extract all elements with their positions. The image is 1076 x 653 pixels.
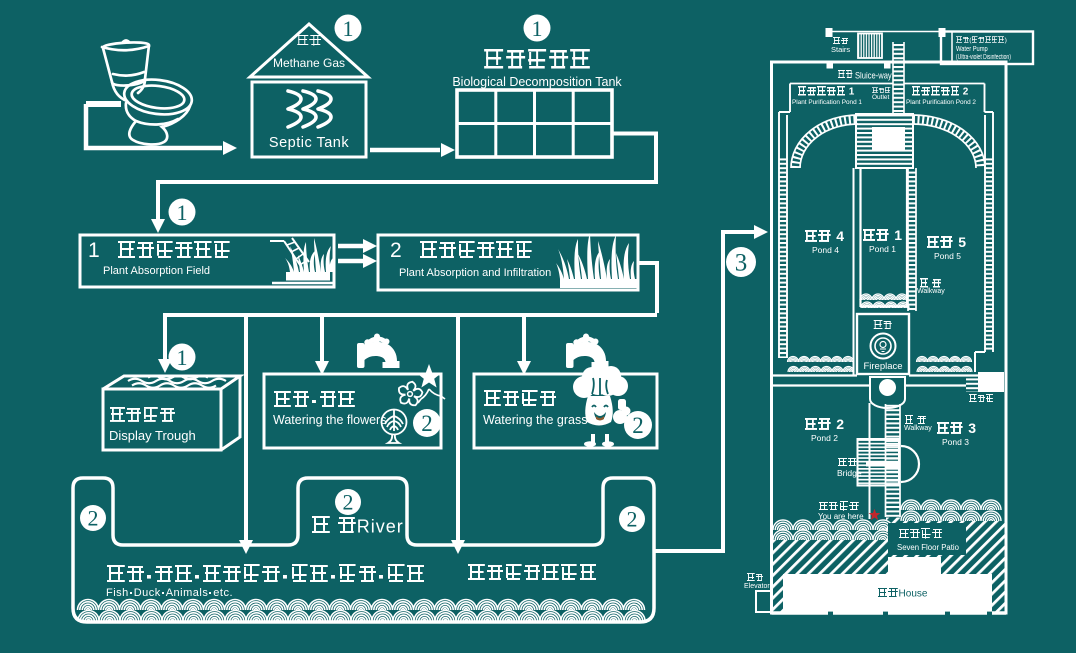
- svg-text:3: 3: [735, 250, 748, 277]
- svg-text:1: 1: [343, 16, 354, 41]
- svg-text:2: 2: [343, 490, 354, 515]
- svg-text:1: 1: [177, 345, 188, 370]
- svg-text:2: 2: [421, 411, 433, 436]
- svg-text:1: 1: [532, 16, 543, 41]
- svg-text:2: 2: [627, 507, 638, 532]
- svg-text:2: 2: [88, 506, 99, 531]
- svg-text:2: 2: [632, 413, 644, 438]
- svg-text:1: 1: [177, 200, 188, 225]
